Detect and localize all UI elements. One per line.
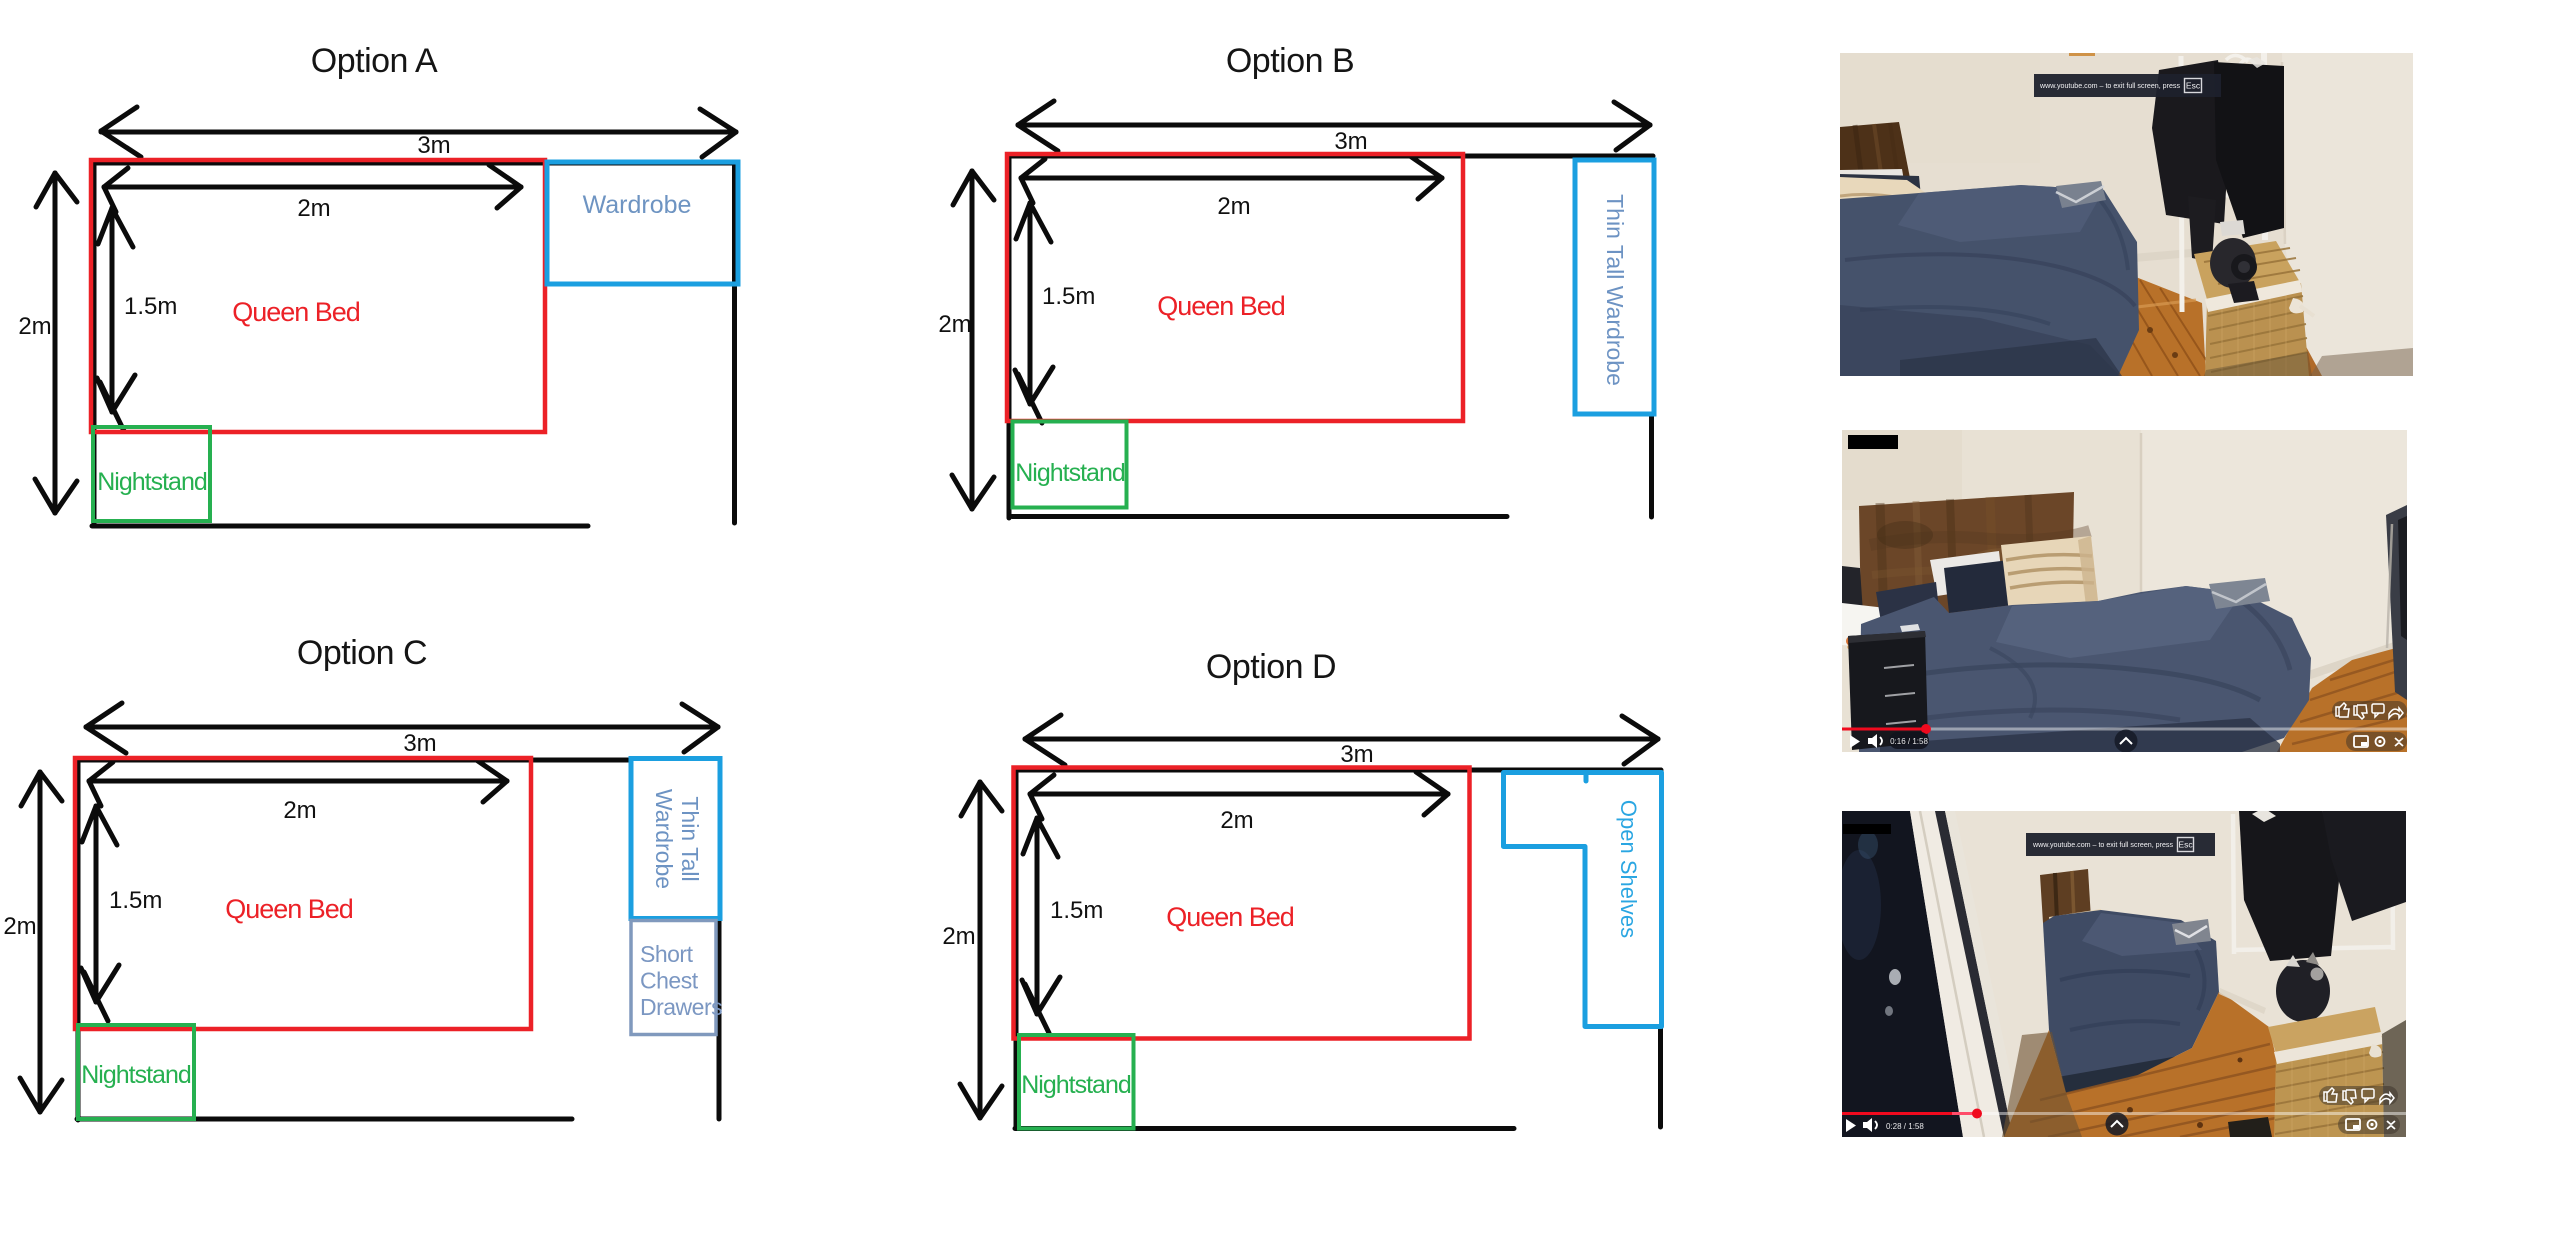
svg-text:1.5m: 1.5m: [109, 887, 162, 914]
svg-text:0:16 / 1:58: 0:16 / 1:58: [1890, 737, 1928, 746]
svg-text:1.5m: 1.5m: [1050, 897, 1103, 924]
svg-text:Queen Bed: Queen Bed: [232, 297, 360, 327]
svg-text:Thin TallWardrobe: Thin TallWardrobe: [651, 789, 703, 889]
svg-text:2m: 2m: [1220, 807, 1253, 834]
svg-text:2m: 2m: [3, 913, 36, 940]
svg-text:Option A: Option A: [311, 42, 438, 80]
svg-text:Option C: Option C: [297, 634, 427, 672]
svg-text:0:28 / 1:58: 0:28 / 1:58: [1886, 1122, 1924, 1131]
svg-text:3m: 3m: [1340, 741, 1373, 768]
svg-text:2m: 2m: [1217, 193, 1250, 220]
svg-text:2m: 2m: [18, 313, 51, 340]
svg-text:2m: 2m: [942, 923, 975, 950]
svg-text:Thin Tall Wardrobe: Thin Tall Wardrobe: [1602, 194, 1628, 386]
svg-text:Option B: Option B: [1226, 42, 1354, 80]
svg-text:Queen Bed: Queen Bed: [225, 894, 353, 924]
svg-text:Open Shelves: Open Shelves: [1616, 800, 1641, 938]
svg-text:Nightstand: Nightstand: [97, 468, 207, 496]
svg-text:Queen Bed: Queen Bed: [1166, 902, 1294, 932]
svg-text:2m: 2m: [283, 797, 316, 824]
svg-text:www.youtube.com – to exit full: www.youtube.com – to exit full screen, p…: [2032, 840, 2173, 849]
svg-text:Esc: Esc: [2186, 81, 2201, 91]
svg-text:1.5m: 1.5m: [1042, 283, 1095, 310]
svg-text:Esc: Esc: [2178, 840, 2193, 850]
svg-text:Nightstand: Nightstand: [81, 1061, 191, 1089]
svg-text:Nightstand: Nightstand: [1015, 459, 1125, 487]
svg-text:www.youtube.com – to exit full: www.youtube.com – to exit full screen, p…: [2039, 81, 2180, 90]
svg-text:3m: 3m: [403, 730, 436, 757]
svg-text:3m: 3m: [417, 132, 450, 159]
svg-text:1.5m: 1.5m: [124, 293, 177, 320]
svg-text:Nightstand: Nightstand: [1021, 1071, 1131, 1099]
svg-text:3m: 3m: [1334, 128, 1367, 155]
svg-text:2m: 2m: [938, 311, 971, 338]
svg-text:Wardrobe: Wardrobe: [583, 191, 692, 219]
svg-text:Option D: Option D: [1206, 648, 1336, 686]
svg-text:2m: 2m: [297, 195, 330, 222]
svg-text:Queen Bed: Queen Bed: [1157, 291, 1285, 321]
